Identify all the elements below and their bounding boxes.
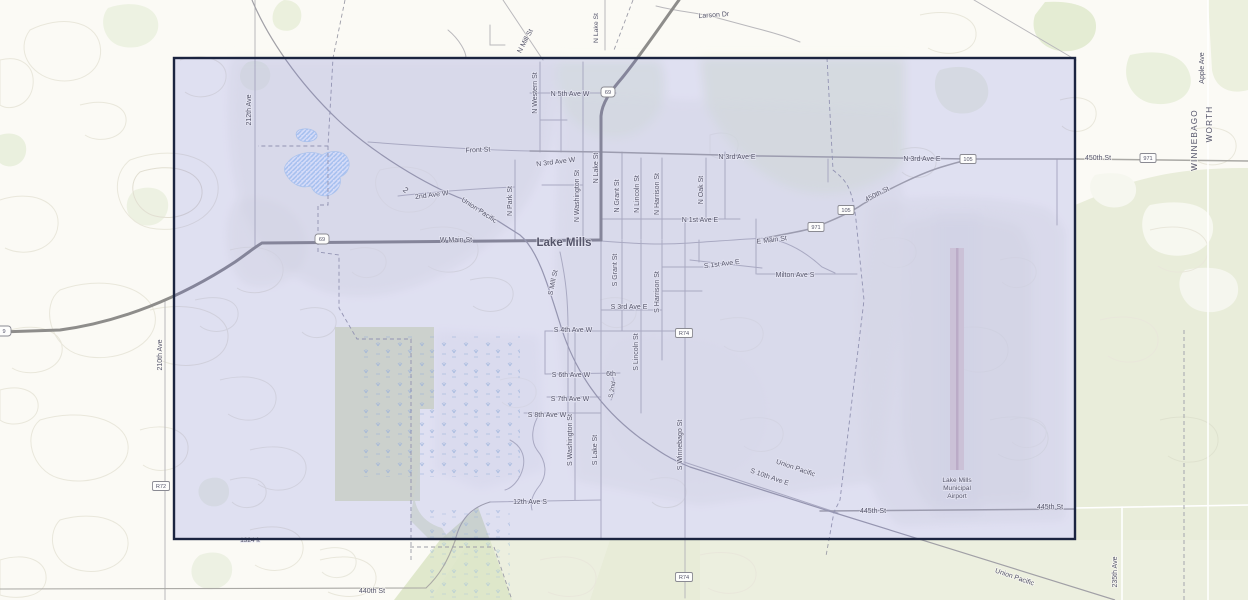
- svg-text:S 7th Ave W: S 7th Ave W: [551, 396, 590, 403]
- svg-text:WORTH: WORTH: [1205, 106, 1214, 143]
- svg-text:12th Ave S: 12th Ave S: [513, 499, 547, 506]
- svg-text:S 6th Ave W: S 6th Ave W: [552, 372, 591, 379]
- svg-text:N Harrison St: N Harrison St: [654, 173, 661, 215]
- svg-text:S Grant St: S Grant St: [612, 254, 619, 287]
- svg-text:N Grant St: N Grant St: [614, 179, 621, 212]
- svg-text:N 1st Ave E: N 1st Ave E: [682, 217, 719, 224]
- svg-text:971: 971: [811, 225, 820, 231]
- svg-text:440th St: 440th St: [359, 588, 385, 595]
- svg-text:N 3rd Ave E: N 3rd Ave E: [903, 156, 941, 163]
- svg-text:69: 69: [319, 237, 325, 243]
- svg-text:Municipal: Municipal: [943, 485, 971, 492]
- svg-text:S Lake St: S Lake St: [592, 435, 599, 465]
- svg-text:N Washington St: N Washington St: [574, 170, 581, 222]
- svg-text:Lake Mills: Lake Mills: [537, 237, 592, 249]
- svg-text:N Park St: N Park St: [507, 186, 514, 216]
- svg-text:N Oak St: N Oak St: [698, 176, 705, 204]
- svg-text:Lake Mills: Lake Mills: [942, 477, 972, 484]
- svg-text:445th St: 445th St: [1037, 504, 1063, 511]
- svg-text:S Harrison St: S Harrison St: [654, 271, 661, 313]
- svg-text:R72: R72: [156, 484, 166, 490]
- svg-text:N Lake St: N Lake St: [593, 153, 600, 184]
- svg-text:S Lincoln St: S Lincoln St: [633, 333, 640, 370]
- svg-text:971: 971: [1143, 156, 1152, 162]
- svg-text:Front St: Front St: [465, 146, 490, 154]
- svg-text:R74: R74: [679, 331, 689, 337]
- svg-text:S 8th Ave W: S 8th Ave W: [528, 412, 567, 419]
- svg-text:212th Ave: 212th Ave: [246, 94, 253, 125]
- svg-text:235th Ave: 235th Ave: [1112, 556, 1119, 587]
- svg-text:N 3rd Ave E: N 3rd Ave E: [718, 154, 756, 161]
- svg-text:S Washington St: S Washington St: [567, 414, 574, 466]
- svg-text:69: 69: [605, 90, 611, 96]
- svg-text:S Winnebago St: S Winnebago St: [677, 420, 684, 471]
- svg-text:210th Ave: 210th Ave: [157, 339, 164, 370]
- svg-text:445th St: 445th St: [860, 508, 886, 515]
- svg-text:N Lake St: N Lake St: [593, 13, 600, 43]
- svg-text:9: 9: [2, 329, 5, 335]
- svg-text:6th: 6th: [606, 371, 616, 378]
- svg-text:105: 105: [841, 208, 850, 214]
- svg-text:105: 105: [963, 157, 972, 163]
- svg-text:450th St: 450th St: [1085, 155, 1111, 162]
- svg-text:N Western St: N Western St: [532, 72, 539, 114]
- svg-text:N Lincoln St: N Lincoln St: [634, 175, 641, 213]
- svg-text:S 4th Ave W: S 4th Ave W: [554, 327, 593, 334]
- svg-text:W Main St: W Main St: [440, 237, 472, 244]
- svg-text:Apple Ave: Apple Ave: [1199, 52, 1206, 84]
- svg-text:R74: R74: [679, 575, 689, 581]
- svg-text:S 3rd Ave E: S 3rd Ave E: [611, 304, 648, 311]
- svg-text:Airport: Airport: [947, 493, 967, 500]
- svg-text:N 5th Ave W: N 5th Ave W: [551, 91, 590, 98]
- svg-text:WINNEBAGO: WINNEBAGO: [1190, 109, 1199, 171]
- svg-text:Milton Ave S: Milton Ave S: [776, 272, 815, 279]
